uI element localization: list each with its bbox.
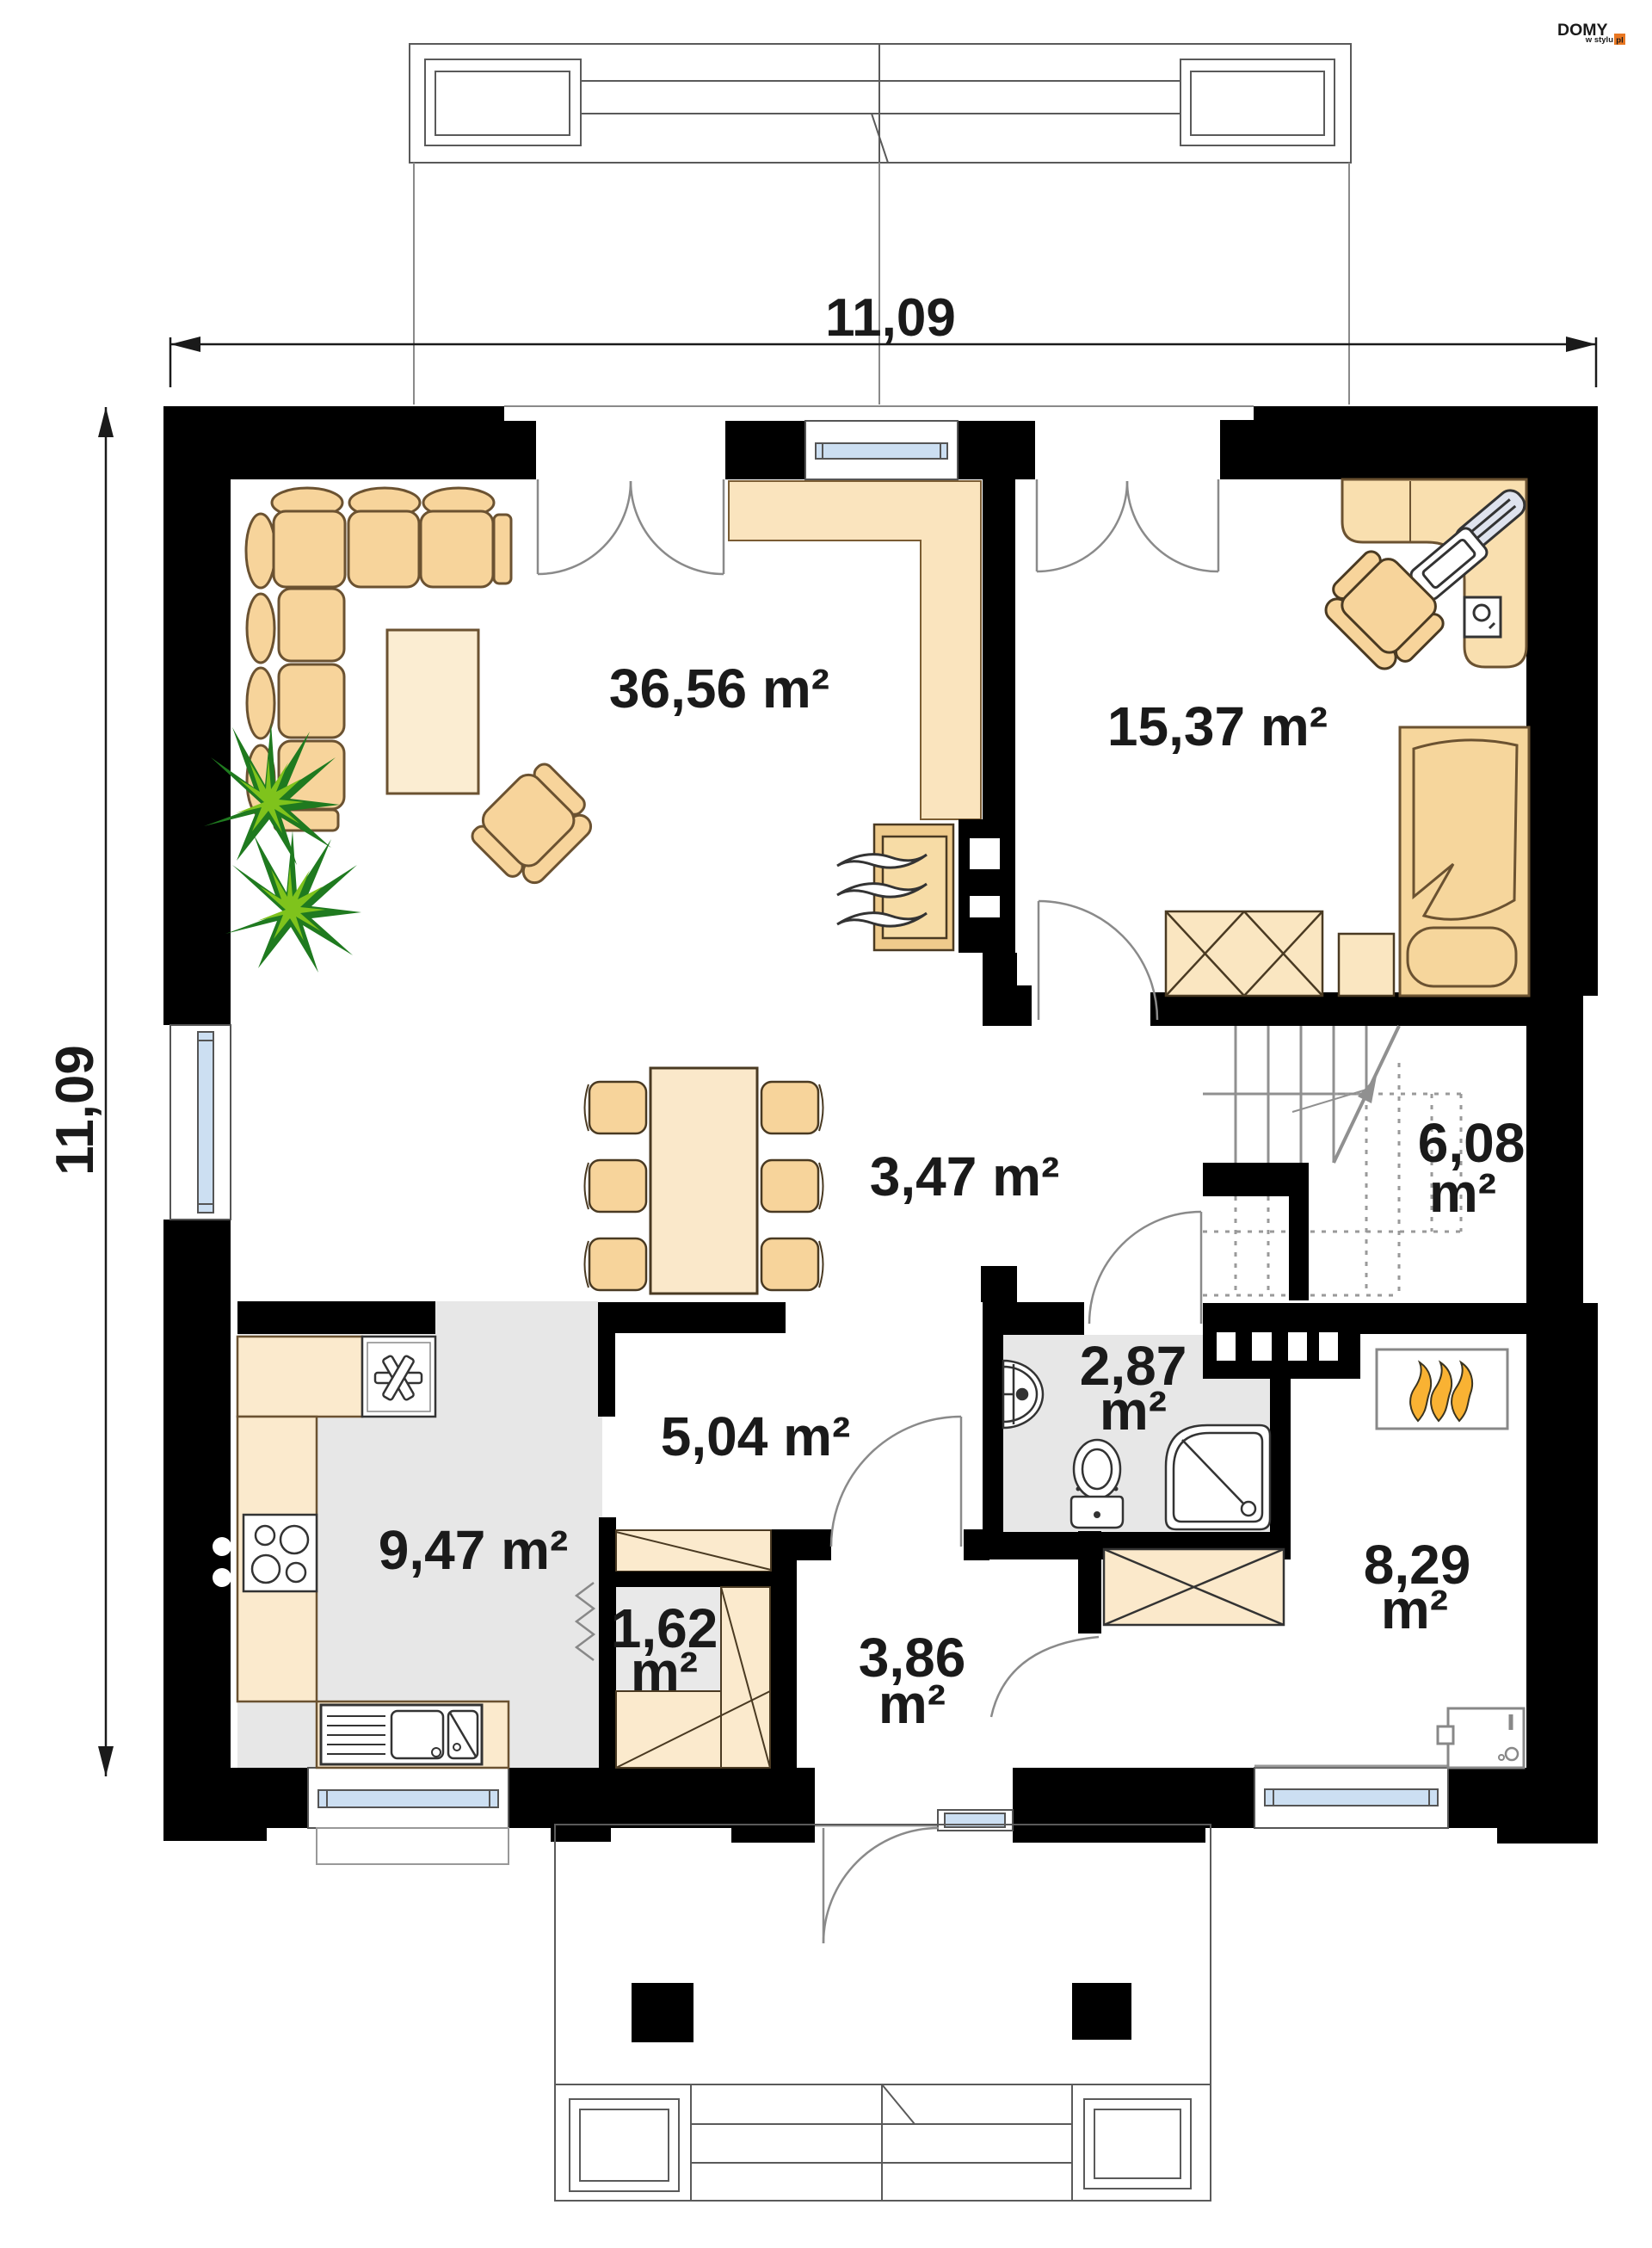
svg-text:5,04 m²: 5,04 m² [661,1405,851,1467]
svg-text:9,47 m²: 9,47 m² [379,1519,569,1581]
svg-text:pl: pl [1616,36,1623,46]
svg-text:m²: m² [878,1673,946,1735]
svg-text:m²: m² [1100,1380,1167,1442]
svg-text:11,09: 11,09 [46,1045,105,1176]
svg-text:m²: m² [1381,1578,1448,1640]
svg-text:w stylu: w stylu [1585,35,1613,45]
svg-text:m²: m² [1429,1162,1496,1224]
svg-text:3,47 m²: 3,47 m² [870,1146,1060,1207]
svg-text:15,37 m²: 15,37 m² [1107,695,1328,757]
svg-text:m²: m² [631,1640,698,1702]
svg-text:36,56 m²: 36,56 m² [609,658,829,719]
svg-text:11,09: 11,09 [825,288,956,348]
